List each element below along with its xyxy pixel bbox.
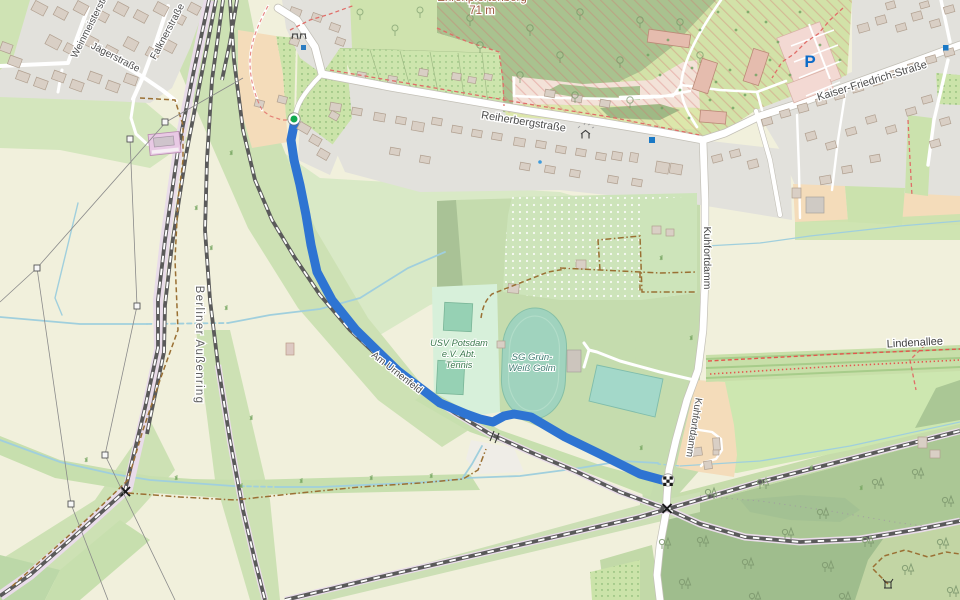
svg-text:USV Potsdam: USV Potsdam: [430, 338, 488, 348]
svg-text:Tennis: Tennis: [446, 360, 473, 370]
svg-text:71 m: 71 m: [469, 5, 495, 17]
svg-text:Berliner Außenring: Berliner Außenring: [193, 286, 205, 405]
svg-text:Ehrenpfortenberg: Ehrenpfortenberg: [437, 0, 527, 4]
svg-text:P: P: [804, 52, 815, 71]
svg-text:Kuhfortdamm: Kuhfortdamm: [701, 226, 713, 289]
svg-text:e.V. Abt.: e.V. Abt.: [442, 349, 476, 359]
svg-text:Weiß Golm: Weiß Golm: [508, 363, 555, 374]
svg-text:SG Grün-: SG Grün-: [512, 352, 553, 363]
